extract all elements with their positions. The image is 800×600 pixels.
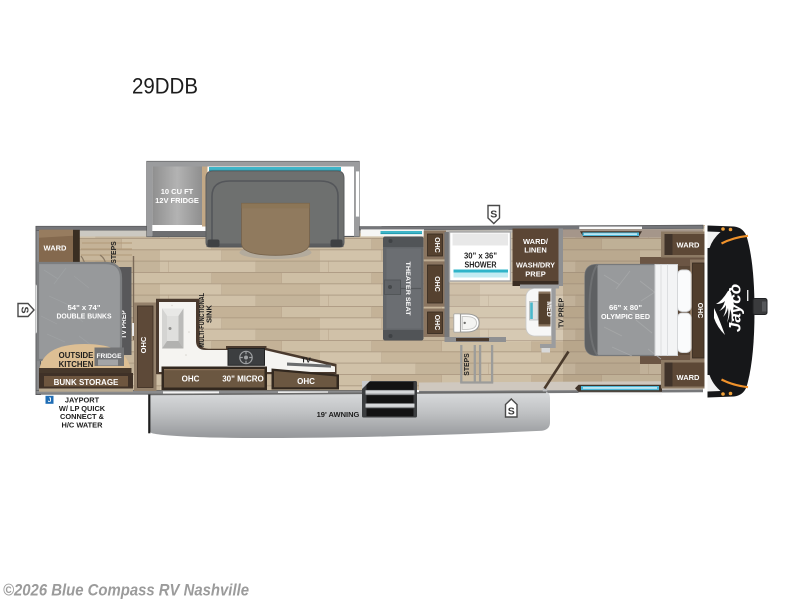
svg-text:WASH/DRY: WASH/DRY (516, 261, 555, 270)
svg-text:MED: MED (545, 301, 552, 317)
svg-text:OLYMPIC BED: OLYMPIC BED (601, 312, 651, 321)
svg-text:SINK: SINK (205, 304, 214, 323)
svg-text:TV: TV (301, 356, 311, 365)
svg-text:THEATER SEAT: THEATER SEAT (404, 262, 411, 317)
svg-text:LINEN: LINEN (524, 246, 547, 255)
svg-text:OHC: OHC (433, 276, 440, 292)
svg-text:TV PREP: TV PREP (557, 298, 566, 328)
svg-text:J: J (48, 397, 52, 404)
svg-text:30" MICRO: 30" MICRO (222, 375, 264, 384)
svg-text:12V FRIDGE: 12V FRIDGE (155, 196, 199, 205)
svg-text:OHC: OHC (696, 303, 703, 319)
svg-text:OHC: OHC (182, 375, 200, 384)
svg-text:S: S (490, 209, 497, 221)
svg-text:OHC: OHC (433, 315, 440, 331)
svg-text:STEPS: STEPS (109, 241, 118, 264)
svg-text:S: S (19, 306, 31, 313)
svg-text:PREP: PREP (525, 270, 545, 279)
svg-text:10 CU FT: 10 CU FT (161, 187, 194, 196)
svg-text:STEPS: STEPS (462, 353, 471, 376)
svg-text:WARD: WARD (677, 241, 700, 250)
svg-text:DOUBLE BUNKS: DOUBLE BUNKS (57, 312, 112, 321)
svg-text:66" x 80": 66" x 80" (609, 303, 642, 312)
svg-text:KITCHEN: KITCHEN (59, 360, 94, 369)
svg-text:OHC: OHC (297, 377, 315, 386)
svg-text:WARD: WARD (44, 244, 67, 253)
svg-text:29DDB: 29DDB (132, 74, 198, 99)
svg-text:©2026 Blue Compass RV Nashvill: ©2026 Blue Compass RV Nashville (3, 582, 249, 600)
svg-text:OHC: OHC (139, 336, 148, 353)
svg-text:SHOWER: SHOWER (465, 261, 497, 270)
svg-text:S: S (508, 406, 515, 418)
svg-text:H/C WATER: H/C WATER (62, 420, 104, 429)
svg-text:30" x 36": 30" x 36" (464, 252, 497, 261)
svg-text:OHC: OHC (433, 237, 440, 253)
svg-text:WARD: WARD (677, 373, 700, 382)
svg-text:19' AWNING: 19' AWNING (317, 410, 360, 419)
svg-text:BUNK STORAGE: BUNK STORAGE (54, 378, 119, 387)
svg-text:OUTSIDE: OUTSIDE (59, 351, 94, 360)
svg-text:FRIDGE: FRIDGE (97, 353, 122, 360)
